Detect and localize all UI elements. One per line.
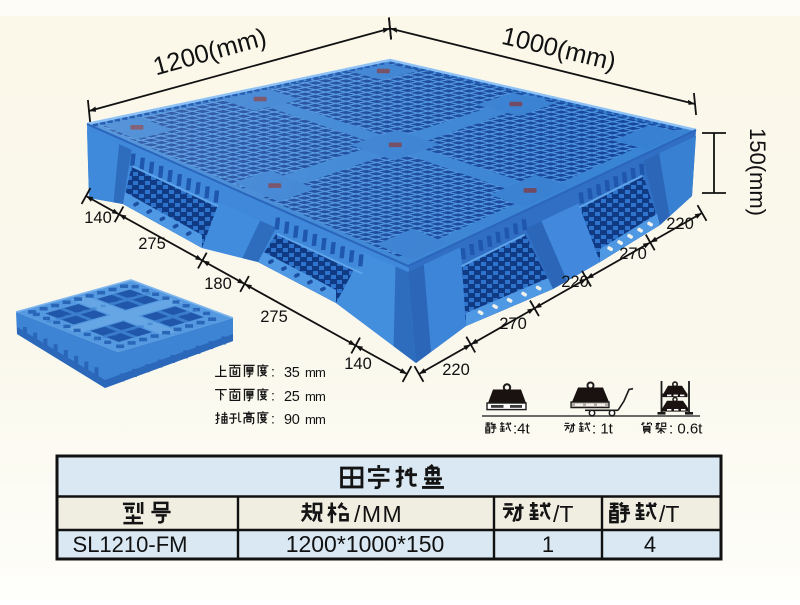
svg-text:mm: mm (305, 365, 325, 380)
svg-text:140: 140 (84, 209, 112, 227)
svg-text:275: 275 (138, 235, 166, 253)
svg-text:/T: /T (553, 501, 573, 527)
svg-text:1: 1 (542, 532, 554, 557)
svg-text:220: 220 (442, 361, 470, 379)
svg-text::: : (271, 411, 275, 427)
svg-text:270: 270 (499, 315, 527, 333)
svg-text:mm: mm (305, 412, 325, 427)
svg-text:275: 275 (260, 308, 288, 326)
svg-text::4t: :4t (513, 421, 531, 438)
svg-text::: : (271, 364, 275, 380)
svg-text:180: 180 (204, 275, 232, 293)
svg-text:mm: mm (305, 389, 325, 404)
svg-text:: 0.6t: : 0.6t (669, 421, 703, 438)
svg-text:35: 35 (284, 365, 300, 381)
svg-text:: 1t: : 1t (592, 421, 614, 438)
svg-text:/T: /T (659, 501, 679, 527)
svg-text:140: 140 (344, 355, 372, 373)
svg-text:220: 220 (666, 215, 694, 233)
svg-text:4: 4 (644, 532, 656, 557)
svg-text:270: 270 (619, 245, 647, 263)
svg-text:220: 220 (561, 273, 589, 291)
svg-text:90: 90 (284, 412, 300, 428)
svg-text:25: 25 (284, 389, 300, 405)
svg-text:1200*1000*150: 1200*1000*150 (286, 531, 445, 557)
svg-text:150(mm): 150(mm) (745, 128, 770, 216)
svg-text:/MM: /MM (354, 501, 403, 527)
svg-text::: : (271, 388, 275, 404)
svg-text:SL1210-FM: SL1210-FM (73, 532, 188, 557)
